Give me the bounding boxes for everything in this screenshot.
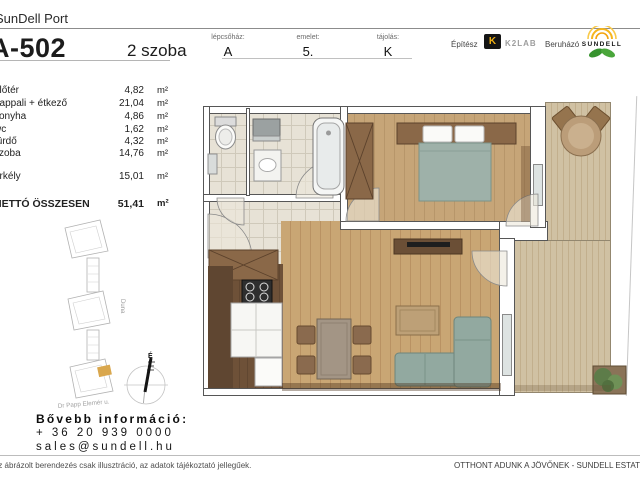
bedroom-rug (521, 146, 530, 222)
room-name: előtér (0, 85, 19, 96)
info-staircase: lépcsőház: A (201, 34, 255, 59)
staircase-label: lépcsőház: (201, 34, 255, 41)
sundell-logo: SUNDELL (576, 26, 628, 60)
bedroom-wardrobe (346, 123, 373, 199)
room-name: fürdő (0, 136, 17, 147)
plan-furniture-layer (203, 88, 637, 400)
kitchen-counter-dark (208, 266, 233, 388)
room-area: 4,86 (100, 111, 144, 122)
table-row: nappali + étkező 21,04 m² (0, 98, 180, 111)
unit-type: 2 szoba (127, 41, 187, 61)
room-unit: m² (157, 148, 177, 159)
dining-table (317, 319, 351, 379)
leaf-right-icon (600, 47, 617, 60)
floor-label: emelet: (281, 34, 335, 41)
architect-name: K2LAB (505, 39, 537, 48)
table-row: konyha 4,86 m² (0, 111, 180, 124)
river-label: Duna (119, 299, 125, 314)
architect-label: Építész (451, 40, 478, 49)
k2lab-logo: K (484, 34, 501, 49)
room-area: 21,04 (100, 98, 144, 109)
room-name: wc (0, 124, 6, 135)
pillow (455, 126, 484, 142)
room-unit: m² (157, 124, 177, 135)
orientation-value: K (361, 44, 415, 59)
bed (419, 143, 491, 201)
contact-heading: Bővebb információ: (36, 412, 188, 426)
total-area: 51,41 (100, 198, 144, 210)
title-underline (0, 60, 170, 61)
room-unit: m² (157, 136, 177, 147)
developer-label: Beruházó (545, 40, 579, 49)
pillow (423, 126, 452, 142)
washbasin (259, 159, 276, 172)
total-label: NETTÓ ÖSSZESEN (0, 198, 90, 210)
wc-sink (208, 154, 217, 174)
info-orientation: tájolás: K (361, 34, 415, 59)
north-arrow-icon: É (124, 351, 168, 404)
floorplan-sheet: SunDell Port A-502 2 szoba lépcsőház: A … (0, 0, 640, 480)
footer-slogan: OTTHONT ADUNK A JÖVŐNEK - SUNDELL ESTATE… (454, 461, 640, 470)
table-row-total: NETTÓ ÖSSZESEN 51,41 m² (0, 198, 180, 211)
compass-label: É (148, 351, 153, 360)
footer-disclaimer: Az ábrázolt berendezés csak illusztráció… (0, 461, 251, 470)
tv (407, 242, 450, 247)
table-row: előtér 4,82 m² (0, 85, 180, 98)
developer-name: SUNDELL (576, 41, 628, 48)
leaf-left-icon (588, 47, 605, 60)
k2lab-logo-letter: K (489, 37, 496, 47)
room-unit: m² (157, 85, 177, 96)
building-middle (68, 291, 110, 330)
room-name: erkély (0, 171, 21, 182)
footer-divider (0, 455, 640, 456)
header-divider (0, 28, 640, 29)
orientation-label: tájolás: (361, 34, 415, 41)
sun-arc-mid (592, 29, 612, 39)
table-row: szoba 14,76 m² (0, 148, 180, 161)
balcony-table-top (568, 123, 594, 149)
building-north (65, 220, 108, 258)
fridge (255, 358, 282, 386)
deck-shadow (514, 385, 611, 391)
brand-title: SunDell Port (0, 11, 68, 26)
floor-shadow (282, 383, 501, 391)
total-unit: m² (157, 198, 177, 209)
kitchen-counter (231, 303, 282, 357)
room-unit: m² (157, 111, 177, 122)
staircase-value: A (201, 44, 255, 59)
floor-plan (203, 88, 637, 400)
building-south (70, 359, 113, 398)
sun-arc-inner (596, 33, 608, 39)
room-name: szoba (0, 148, 21, 159)
toilet-seat (219, 129, 232, 145)
room-area: 4,82 (100, 85, 144, 96)
street-label: Dr Papp Elemér u. (58, 398, 110, 410)
room-area: 14,76 (100, 148, 144, 159)
contact-phone[interactable]: + 36 20 939 0000 (36, 427, 174, 439)
info-floor: emelet: 5. (281, 34, 335, 59)
building-connector (87, 258, 99, 292)
floor-value: 5. (281, 44, 335, 59)
room-unit: m² (157, 171, 177, 182)
room-area: 15,01 (100, 171, 144, 182)
room-area: 4,32 (100, 136, 144, 147)
bath-cabinet (253, 119, 280, 136)
bath-cabinet-top (253, 136, 280, 141)
contact-email[interactable]: sales@sundell.hu (36, 441, 175, 453)
cooktop (242, 280, 272, 303)
living-balcony-door-arc (472, 251, 507, 286)
room-name: nappali + étkező (0, 98, 67, 109)
room-name: konyha (0, 111, 26, 122)
bathtub-drain (326, 131, 331, 136)
room-area: 1,62 (100, 124, 144, 135)
table-row-balcony: erkély 15,01 m² (0, 171, 180, 184)
room-unit: m² (157, 98, 177, 109)
site-plan: Duna Dr Papp Elemér u. É (40, 215, 180, 415)
